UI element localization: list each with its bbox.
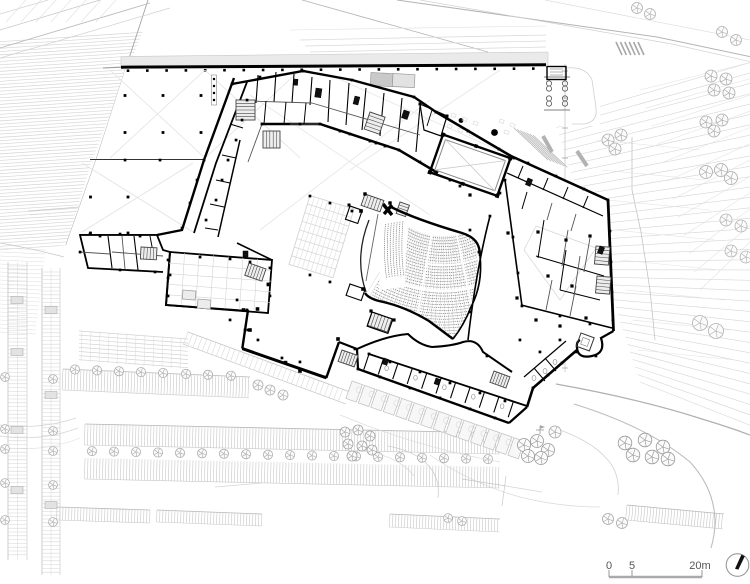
svg-text:0: 0 (606, 560, 612, 572)
svg-text:5: 5 (629, 560, 635, 572)
svg-text:20m: 20m (689, 560, 710, 572)
